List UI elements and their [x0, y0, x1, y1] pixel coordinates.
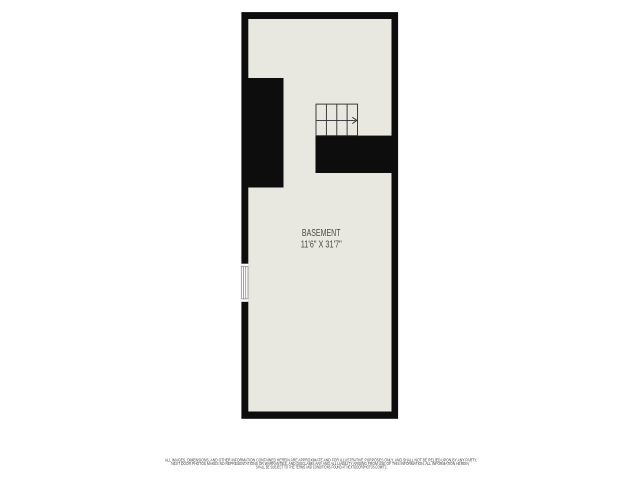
svg-text:11'6" X 31'7": 11'6" X 31'7": [301, 239, 342, 250]
svg-text:SHALL BE SUBJECT TO THE TERMS: SHALL BE SUBJECT TO THE TERMS AND CONDIT…: [256, 465, 388, 470]
svg-text:BASEMENT: BASEMENT: [302, 228, 341, 239]
